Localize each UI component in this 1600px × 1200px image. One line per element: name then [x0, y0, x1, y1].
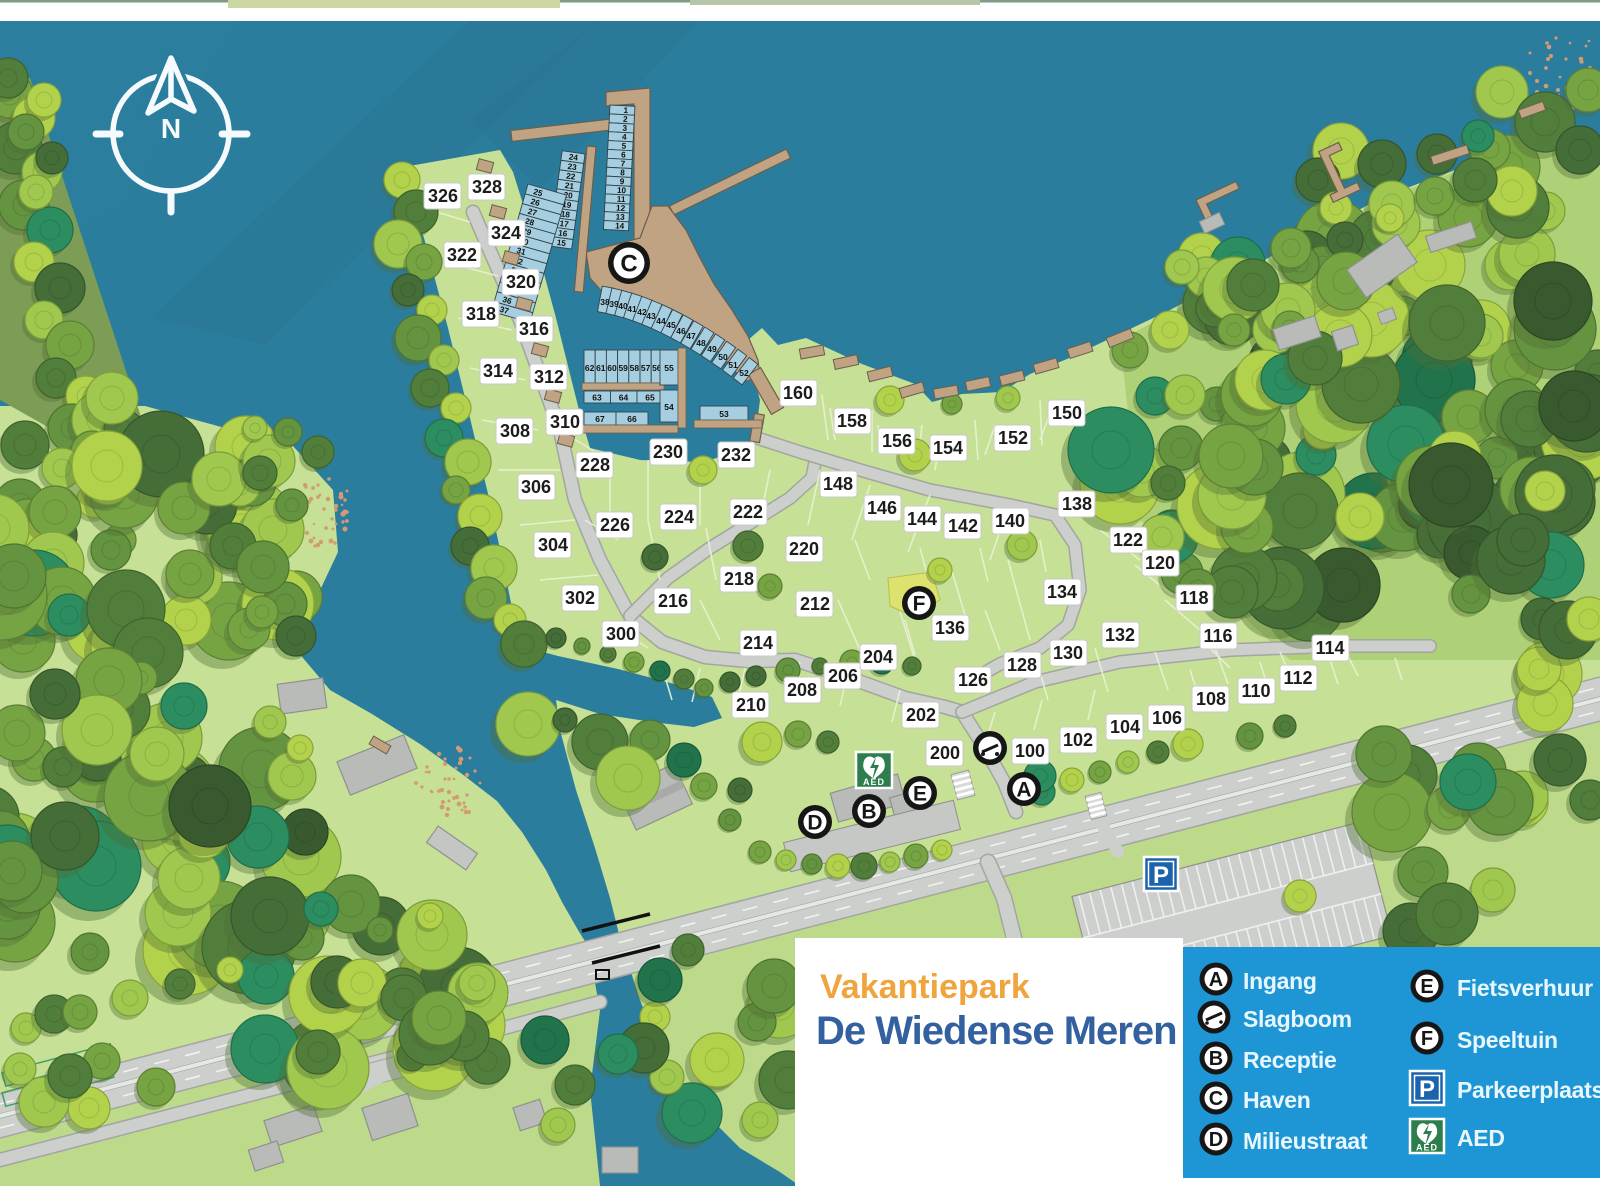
svg-text:302: 302: [565, 588, 595, 608]
svg-text:320: 320: [506, 272, 536, 292]
svg-text:222: 222: [733, 502, 763, 522]
svg-text:148: 148: [823, 474, 853, 494]
svg-text:104: 104: [1110, 717, 1140, 737]
svg-text:Slagboom: Slagboom: [1243, 1006, 1352, 1032]
svg-text:326: 326: [428, 186, 458, 206]
svg-text:132: 132: [1105, 625, 1135, 645]
svg-text:228: 228: [580, 455, 610, 475]
svg-text:130: 130: [1053, 643, 1083, 663]
svg-text:136: 136: [935, 618, 965, 638]
svg-text:Milieustraat: Milieustraat: [1243, 1128, 1368, 1154]
svg-text:300: 300: [606, 624, 636, 644]
svg-text:Vakantiepark: Vakantiepark: [820, 968, 1030, 1006]
svg-text:F: F: [913, 593, 926, 616]
svg-text:15: 15: [556, 238, 567, 248]
svg-text:47: 47: [686, 331, 696, 341]
svg-text:108: 108: [1196, 689, 1226, 709]
svg-text:P: P: [1153, 862, 1169, 889]
svg-text:328: 328: [472, 177, 502, 197]
svg-text:D: D: [1209, 1129, 1223, 1151]
svg-text:64: 64: [619, 393, 629, 403]
svg-text:216: 216: [658, 591, 688, 611]
svg-text:324: 324: [491, 223, 521, 243]
svg-text:B: B: [1209, 1048, 1223, 1070]
svg-text:118: 118: [1179, 588, 1208, 608]
svg-text:140: 140: [995, 511, 1025, 531]
svg-text:142: 142: [948, 516, 978, 536]
svg-text:122: 122: [1113, 530, 1143, 550]
svg-text:204: 204: [863, 647, 893, 667]
svg-text:112: 112: [1283, 668, 1312, 688]
svg-text:230: 230: [653, 442, 683, 462]
svg-text:55: 55: [664, 363, 674, 373]
svg-text:Speeltuin: Speeltuin: [1457, 1027, 1558, 1053]
svg-text:100: 100: [1015, 741, 1045, 761]
svg-text:138: 138: [1062, 494, 1092, 514]
svg-text:110: 110: [1241, 681, 1270, 701]
svg-text:318: 318: [466, 304, 496, 324]
svg-text:41: 41: [627, 304, 637, 314]
svg-text:E: E: [913, 783, 927, 806]
svg-text:46: 46: [676, 326, 686, 336]
svg-text:308: 308: [500, 421, 530, 441]
svg-text:54: 54: [664, 402, 674, 412]
svg-text:114: 114: [1315, 638, 1344, 658]
svg-text:63: 63: [592, 393, 602, 403]
svg-text:Haven: Haven: [1243, 1087, 1311, 1113]
svg-text:E: E: [1420, 976, 1433, 998]
svg-text:45: 45: [666, 320, 676, 330]
svg-text:226: 226: [600, 515, 630, 535]
svg-text:N: N: [161, 113, 181, 144]
svg-text:AED: AED: [863, 777, 885, 787]
svg-text:232: 232: [721, 445, 751, 465]
svg-text:310: 310: [550, 412, 580, 432]
svg-text:58: 58: [630, 363, 640, 373]
svg-text:102: 102: [1063, 730, 1093, 750]
svg-text:312: 312: [534, 367, 564, 387]
svg-text:314: 314: [483, 361, 513, 381]
svg-text:208: 208: [787, 680, 817, 700]
svg-text:C: C: [1209, 1088, 1223, 1110]
svg-text:206: 206: [828, 666, 858, 686]
svg-text:62: 62: [585, 363, 595, 373]
svg-text:De Wiedense Meren: De Wiedense Meren: [816, 1009, 1177, 1053]
svg-text:200: 200: [930, 743, 960, 763]
svg-text:60: 60: [607, 363, 617, 373]
svg-text:67: 67: [595, 414, 605, 424]
svg-text:59: 59: [618, 363, 628, 373]
svg-text:C: C: [620, 251, 637, 278]
svg-text:65: 65: [645, 393, 655, 403]
svg-text:146: 146: [867, 498, 897, 518]
svg-text:48: 48: [696, 338, 706, 348]
svg-text:Fietsverhuur: Fietsverhuur: [1457, 975, 1593, 1001]
svg-text:AED: AED: [1457, 1125, 1505, 1151]
svg-text:P: P: [1419, 1076, 1435, 1103]
svg-text:F: F: [1421, 1028, 1433, 1050]
svg-text:116: 116: [1203, 626, 1232, 646]
svg-text:126: 126: [958, 670, 988, 690]
svg-text:160: 160: [783, 383, 813, 403]
svg-text:AED: AED: [1416, 1142, 1438, 1152]
svg-text:Ingang: Ingang: [1243, 968, 1317, 994]
svg-text:306: 306: [521, 477, 551, 497]
svg-text:52: 52: [739, 368, 749, 378]
svg-text:304: 304: [538, 535, 568, 555]
svg-text:A: A: [1209, 969, 1223, 991]
svg-text:50: 50: [718, 352, 728, 362]
svg-text:Parkeerplaats: Parkeerplaats: [1457, 1077, 1600, 1103]
svg-text:B: B: [861, 801, 876, 824]
svg-text:106: 106: [1152, 708, 1182, 728]
svg-text:156: 156: [882, 431, 912, 451]
svg-text:134: 134: [1047, 582, 1077, 602]
svg-text:14: 14: [615, 221, 625, 230]
svg-text:210: 210: [736, 695, 766, 715]
svg-text:214: 214: [743, 633, 773, 653]
svg-text:66: 66: [627, 414, 637, 424]
svg-text:150: 150: [1052, 403, 1082, 423]
svg-text:218: 218: [724, 569, 754, 589]
svg-text:43: 43: [646, 311, 656, 321]
svg-text:202: 202: [906, 705, 936, 725]
svg-text:158: 158: [837, 411, 867, 431]
svg-text:49: 49: [707, 344, 717, 354]
svg-text:152: 152: [998, 428, 1028, 448]
svg-text:120: 120: [1145, 553, 1175, 573]
svg-text:224: 224: [664, 507, 694, 527]
svg-text:61: 61: [596, 363, 606, 373]
svg-text:44: 44: [656, 316, 666, 326]
svg-text:Receptie: Receptie: [1243, 1047, 1336, 1073]
svg-text:220: 220: [789, 539, 819, 559]
svg-text:154: 154: [933, 438, 963, 458]
svg-text:D: D: [807, 812, 822, 835]
svg-text:57: 57: [641, 363, 651, 373]
svg-text:51: 51: [728, 360, 738, 370]
svg-text:322: 322: [447, 245, 477, 265]
svg-text:144: 144: [907, 509, 937, 529]
svg-text:53: 53: [719, 409, 729, 419]
svg-text:316: 316: [519, 319, 549, 339]
svg-text:A: A: [1016, 779, 1031, 802]
svg-text:128: 128: [1007, 655, 1037, 675]
svg-text:212: 212: [800, 594, 830, 614]
